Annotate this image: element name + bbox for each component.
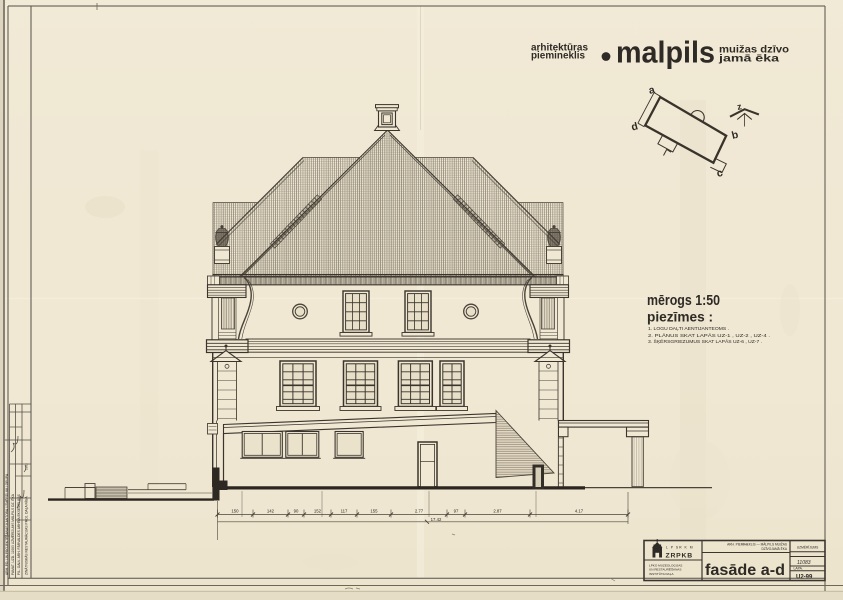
svg-text:ARH. PIEMINEKLIS — MĀLPILS MUI: ARH. PIEMINEKLIS — MĀLPILS MUIŽAS bbox=[727, 542, 787, 547]
svg-text:U2-99: U2-99 bbox=[796, 574, 813, 580]
svg-text:4.17: 4.17 bbox=[575, 509, 584, 514]
svg-text:piezīmes :: piezīmes : bbox=[647, 310, 713, 325]
svg-text:90: 90 bbox=[294, 509, 299, 514]
svg-text:ZRPKB: ZRPKB bbox=[666, 553, 693, 560]
svg-text:17.42: 17.42 bbox=[431, 517, 442, 522]
svg-text:piemineklis: piemineklis bbox=[531, 50, 585, 62]
svg-text:fasāde a-d: fasāde a-d bbox=[705, 562, 785, 579]
svg-text:PIL. GALV. ARH. PĀRVALDES ARHĪ: PIL. GALV. ARH. PĀRVALDES ARHĪVA EKSEMPL… bbox=[17, 493, 21, 575]
svg-text:142: 142 bbox=[267, 509, 275, 514]
svg-text:11083: 11083 bbox=[797, 560, 811, 566]
svg-text:DZĪVOJAMĀ ĒKA: DZĪVOJAMĀ ĒKA bbox=[761, 547, 787, 551]
svg-text:155: 155 bbox=[370, 509, 378, 514]
svg-text:INSTITŪTA DAĻA: INSTITŪTA DAĻA bbox=[649, 572, 674, 576]
svg-text:malpils: malpils bbox=[616, 35, 715, 70]
svg-text:jamā ēka: jamā ēka bbox=[718, 52, 780, 64]
svg-text:L P SR K M: L P SR K M bbox=[666, 546, 694, 550]
svg-text:ZINĀTNISKĀS RESTAURĀCIJAS PROJ: ZINĀTNISKĀS RESTAURĀCIJAS PROJ. DAĻA RĪG… bbox=[24, 496, 28, 575]
svg-text:1983: 1983 bbox=[24, 463, 28, 470]
svg-text:ARH. PD. UN PROJEKTĒŠANAS KANT: ARH. PD. UN PROJEKTĒŠANAS KANTORA UZMĒRĪ… bbox=[4, 473, 9, 575]
svg-text:PAMAT. UZD. 11083 UZMĒRĪJUMS: PAMAT. UZD. 11083 UZMĒRĪJUMS MĀLPILS DZ.… bbox=[11, 493, 15, 575]
svg-text:117: 117 bbox=[341, 509, 348, 514]
svg-text:152: 152 bbox=[314, 509, 322, 514]
svg-text:3. ŠĶĒRSGRIEZUMUS SKAT LAPĀ: 3. ŠĶĒRSGRIEZUMUS SKAT LAPĀS UZ-6 , UZ-7… bbox=[648, 339, 762, 344]
svg-text:UZMĒRĪJUMS: UZMĒRĪJUMS bbox=[797, 545, 819, 549]
svg-text:mērogs 1:50: mērogs 1:50 bbox=[647, 292, 720, 309]
svg-text:2.87: 2.87 bbox=[493, 509, 502, 514]
svg-text:97: 97 bbox=[454, 509, 459, 514]
svg-text:2. PLĀNUS SKAT LAPĀS UZ-1: 2. PLĀNUS SKAT LAPĀS UZ-1 , UZ-2 , UZ-4 … bbox=[648, 333, 770, 338]
svg-text:LAPA.: LAPA. bbox=[794, 567, 803, 571]
svg-text:1. LOGU DAĻTI AENTIJANTEOMS: 1. LOGU DAĻTI AENTIJANTEOMS . bbox=[648, 326, 729, 331]
svg-text:2.77: 2.77 bbox=[415, 509, 424, 514]
svg-text:150: 150 bbox=[231, 509, 239, 514]
